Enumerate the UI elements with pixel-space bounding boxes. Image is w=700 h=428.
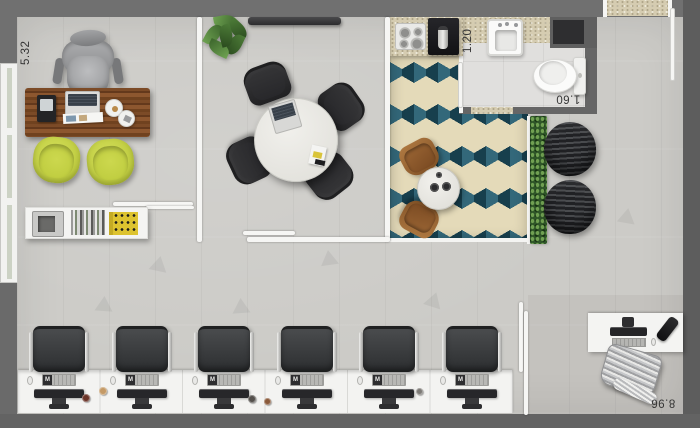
dimension-label: 1.20 <box>463 15 475 53</box>
monitor-base-icon <box>462 404 482 409</box>
task-chair-icon <box>281 326 333 372</box>
mouse-icon <box>110 376 116 385</box>
cup-icon <box>248 395 256 403</box>
kitchen-floor-edge <box>388 238 531 242</box>
monitor-base-icon <box>379 404 399 409</box>
window-glass <box>7 205 12 279</box>
monitor-base-icon <box>214 404 234 409</box>
sink-icon <box>487 19 523 56</box>
dimension-label: 1.60 <box>550 92 586 104</box>
open-office-partition <box>519 302 523 372</box>
cup-icon <box>430 183 439 192</box>
faucet-icon <box>514 23 518 27</box>
mouse-icon <box>192 376 198 385</box>
dimension-label: 5.32 <box>21 19 33 65</box>
keyboard-icon: M <box>125 374 159 386</box>
mouse-icon <box>275 376 281 385</box>
books-icon <box>71 210 105 235</box>
task-chair-icon <box>363 326 415 372</box>
keyboard-logo: M <box>208 375 217 385</box>
hedge-planter <box>530 116 547 244</box>
cup-icon <box>442 182 451 191</box>
sideboard <box>25 207 148 239</box>
monitor-base-icon <box>297 404 317 409</box>
window-glass <box>7 135 12 198</box>
cup-icon <box>264 398 271 405</box>
meeting-room-sliding-door <box>243 231 295 235</box>
task-chair-icon <box>33 326 85 372</box>
monitor-icon <box>117 389 167 398</box>
plant-icon <box>200 14 252 64</box>
keyboard-icon: M <box>372 374 406 386</box>
flush-button <box>578 73 582 78</box>
right-wall <box>683 0 700 428</box>
plate-icon <box>118 110 135 127</box>
left-wall-lower <box>0 283 17 414</box>
cup-icon <box>416 388 423 395</box>
workstation: M <box>266 326 349 414</box>
floor-mark <box>231 297 250 313</box>
toilet-icon <box>533 56 585 96</box>
left-wall-upper <box>0 0 17 63</box>
workstation: M <box>101 326 184 414</box>
keyboard-icon: M <box>290 374 324 386</box>
toilet-seat <box>539 61 567 85</box>
mouse-icon <box>440 376 446 385</box>
window-left <box>0 63 18 283</box>
bottle-icon <box>438 26 448 49</box>
cup-icon <box>99 387 107 395</box>
keyboard-logo: M <box>126 375 135 385</box>
dimension-label: 8.96 <box>643 396 683 408</box>
faucet-icon <box>505 22 509 26</box>
bottom-wall <box>0 414 700 428</box>
task-chair-icon <box>446 326 498 372</box>
meeting-room-wall-right <box>385 17 390 241</box>
monitor-stand-icon <box>622 317 634 327</box>
monitor-icon <box>34 389 84 398</box>
workstation: M <box>431 326 514 414</box>
window-glass <box>7 68 12 128</box>
door-jamb <box>603 0 607 17</box>
bathroom-door <box>458 62 463 108</box>
floor-mark <box>94 295 113 311</box>
monitor-icon <box>364 389 414 398</box>
cooktop-icon <box>395 23 426 50</box>
cup-icon <box>436 172 442 178</box>
monitor-icon <box>199 389 249 398</box>
duct-shaft-opening <box>553 20 584 44</box>
workstation: M <box>348 326 431 414</box>
monitor-icon <box>282 389 332 398</box>
credenza <box>248 17 341 25</box>
top-wall <box>0 0 700 17</box>
keyboard-logo: M <box>456 375 465 385</box>
keyboard-logo: M <box>373 375 382 385</box>
meeting-room-glass-bottom <box>247 237 390 242</box>
keyboard-icon: M <box>207 374 241 386</box>
desk-phone-icon <box>37 95 56 122</box>
keyboard-logo: M <box>291 375 300 385</box>
keyboard-icon: M <box>455 374 489 386</box>
entrance-threshold <box>605 0 672 16</box>
office-floor-plan: M M M M M M <box>0 0 700 428</box>
yellow-box-icon <box>109 212 138 235</box>
entrance-door <box>670 8 675 81</box>
monitor-base-icon <box>132 404 152 409</box>
kitchen-appliance-icon <box>428 18 459 55</box>
bathroom-door-threshold <box>471 107 513 114</box>
monitor-base-icon <box>49 404 69 409</box>
floor-mark <box>617 207 637 225</box>
keyboard-logo: M <box>43 375 52 385</box>
monitor-icon <box>447 389 497 398</box>
task-chair-icon <box>198 326 250 372</box>
office-sliding-door <box>146 206 194 209</box>
mouse-icon <box>27 376 33 385</box>
task-chair-icon <box>116 326 168 372</box>
printer-icon <box>32 211 64 237</box>
bathroom-wall-bottom <box>513 107 597 114</box>
document-icon <box>63 112 103 124</box>
cup-icon <box>82 394 90 402</box>
floor-mark <box>319 249 339 266</box>
mouse-icon <box>357 376 363 385</box>
open-office-partition <box>524 311 528 415</box>
faucet-icon <box>498 23 502 27</box>
executive-chair-icon <box>50 28 126 96</box>
monitor-icon <box>610 327 647 336</box>
mouse-icon <box>651 338 656 346</box>
keyboard-icon: M <box>42 374 76 386</box>
sink-basin <box>495 30 517 51</box>
